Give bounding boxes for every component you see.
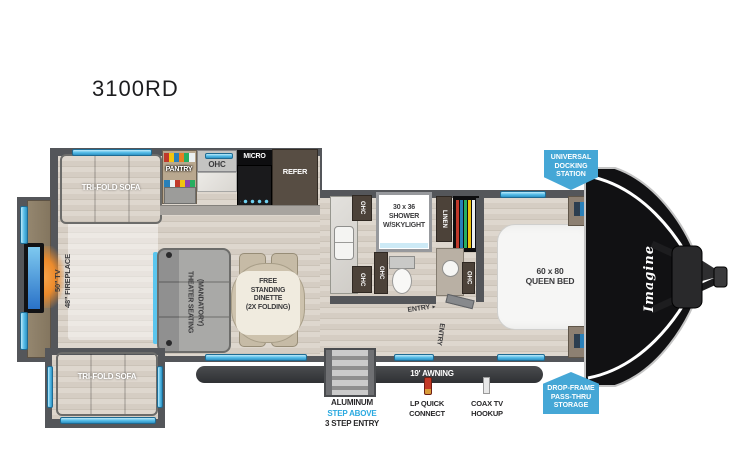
awning-label: 19' AWNING: [400, 370, 464, 379]
refrigerator-label: REFER: [272, 168, 318, 176]
dinette-label-line2: STANDING: [251, 287, 285, 294]
step-entry-annotation: ALUMINUM STEP ABOVE 3 STEP ENTRY: [307, 398, 397, 430]
coax-annotation-line2: HOOKUP: [471, 409, 503, 418]
shower-label: 30 x 36 SHOWER W/SKYLIGHT: [378, 203, 430, 230]
window-bottom-left: [205, 354, 307, 361]
propane-cover: [672, 246, 702, 308]
brand-script-text: Imagine: [642, 244, 657, 311]
vanity-sink: [442, 260, 459, 277]
tri-fold-sofa-slide-label: TRI-FOLD SOFA: [62, 373, 152, 382]
dinette-label-line3: DINETTE: [254, 295, 283, 302]
docking-badge-line2: DOCKING: [554, 163, 587, 170]
entry-steps: [324, 348, 376, 397]
floorplan-page: 3100RD 50" TV 48" FIREPLACE TRI-FOLD SOF…: [0, 0, 731, 469]
brand-script: Imagine: [634, 240, 664, 316]
kitchen-ohc-glass: [205, 153, 233, 159]
docking-badge-line1: UNIVERSAL: [551, 154, 591, 161]
dinette-label-line4: (2X FOLDING): [246, 304, 290, 311]
coax-annotation-line1: COAX TV: [471, 399, 503, 408]
storage-badge-line1: DROP-FRAME: [547, 385, 594, 392]
theater-label-line1: THEATER SEATING: [186, 259, 194, 345]
window-above-sofa: [72, 149, 152, 156]
stove-burners: [240, 197, 269, 204]
sink-ohc-bottom-label: OHC: [359, 273, 365, 286]
toilet-bowl: [392, 268, 412, 294]
storage-badge-line3: STORAGE: [554, 402, 589, 409]
linen-cabinet: LINEN: [436, 196, 452, 242]
slide-window-right: [157, 366, 163, 408]
window-bottom-entry: [394, 354, 434, 361]
toilet-ohc-label: OHC: [378, 266, 384, 279]
step-annotation-line1: ALUMINUM: [331, 398, 373, 407]
linen-label: LINEN: [441, 210, 447, 228]
shower-floor-strip: [380, 243, 428, 248]
tri-fold-sofa-top-label: TRI-FOLD SOFA: [66, 184, 156, 193]
theater-seating: [157, 248, 231, 353]
dinette-label-line1: FREE: [259, 278, 277, 285]
kitchen-sink-divider: [335, 242, 353, 243]
vanity-ohc: OHC: [462, 262, 475, 294]
lp-connect-annotation: LP QUICK CONNECT: [403, 399, 451, 418]
theater-cupholder-bottom: [166, 340, 172, 346]
sink-ohc-top: OHC: [352, 195, 372, 221]
rear-window-top: [20, 206, 28, 244]
microwave-label: MICRO: [237, 153, 272, 161]
tv-screen: [28, 247, 40, 309]
shower-label-line1: 30 x 36: [393, 204, 415, 211]
bath-bottom-wall: [330, 296, 436, 304]
step-annotation-line3: 3 STEP ENTRY: [325, 419, 379, 428]
sink-ohc-top-label: OHC: [359, 201, 365, 214]
slide-window-left: [47, 366, 53, 408]
coax-hookup-marker: [483, 377, 490, 394]
page-title: 3100RD: [92, 76, 179, 102]
shower-label-line2: SHOWER: [389, 213, 419, 220]
rear-window-bottom: [20, 312, 28, 350]
fireplace-label: 48" FIREPLACE: [64, 236, 72, 326]
kitchen-counter: [197, 172, 237, 192]
kitchen-ohc-label: OHC: [199, 161, 235, 170]
bedroom-divider-wall: [476, 198, 484, 302]
toilet-ohc: OHC: [374, 252, 388, 294]
shower-label-line3: W/SKYLIGHT: [383, 222, 425, 229]
slide-window-bottom: [60, 417, 156, 424]
kitchen-sink: [334, 226, 354, 260]
living-rug: [68, 222, 158, 340]
tri-fold-sofa-slide: [56, 352, 158, 416]
hitch-coupler: [714, 267, 727, 287]
theater-label-line2: (MANDATORY): [196, 266, 204, 340]
pantry-label: PANTRY: [160, 166, 198, 174]
wardrobe-clothes: [456, 200, 476, 248]
theater-cupholder-top: [166, 252, 172, 258]
pantry-shelf-items-1: [164, 153, 195, 162]
refrigerator: [272, 149, 318, 208]
step-annotation-line2: STEP ABOVE: [327, 409, 376, 418]
kitchen-base-strip: [160, 205, 320, 215]
docking-badge-line3: STATION: [556, 171, 586, 178]
dinette-label: FREE STANDING DINETTE (2X FOLDING): [236, 278, 300, 312]
entry-arrow-icon: ►: [431, 304, 437, 311]
tv-label: 50" TV: [54, 240, 62, 322]
storage-badge-line2: PASS-THRU: [551, 394, 591, 401]
coax-annotation: COAX TV HOOKUP: [463, 399, 511, 418]
window-bottom-bedroom: [497, 354, 545, 361]
lp-annotation-line1: LP QUICK: [410, 399, 444, 408]
sink-ohc-bottom: OHC: [352, 266, 372, 293]
bedroom-window-top: [500, 191, 546, 198]
kitchen-drawers: [164, 187, 196, 204]
lp-connect-icon: [424, 377, 432, 395]
vanity-ohc-label: OHC: [466, 271, 472, 284]
lp-annotation-line2: CONNECT: [409, 409, 445, 418]
